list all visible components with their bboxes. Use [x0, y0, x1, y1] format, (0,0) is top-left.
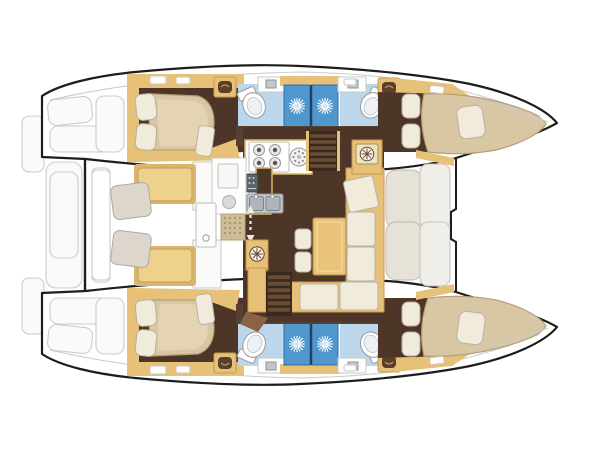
sliding-door: [196, 203, 216, 247]
microwave-icon: [246, 174, 258, 192]
salon-table: [313, 218, 346, 275]
sofa-cushion: [300, 284, 338, 310]
round-basin-icon: [223, 196, 236, 209]
floorplan-image: [0, 0, 600, 450]
fridge-door: [218, 164, 238, 188]
stairs-port-hull: [306, 131, 340, 171]
round-hob-icon: [290, 148, 308, 166]
catamaran-floorplan: [0, 0, 600, 450]
sofa-cushion: [343, 175, 379, 213]
sofa-cushion: [347, 212, 375, 246]
doormat: [221, 214, 245, 240]
sofa-cushion: [347, 247, 375, 281]
forward-crossbar: [451, 159, 456, 291]
stair-side-cabinet: [248, 268, 266, 312]
aft-platform: [46, 162, 82, 288]
stool: [295, 252, 311, 272]
sofa-cushion: [340, 282, 378, 310]
stool: [295, 229, 311, 249]
